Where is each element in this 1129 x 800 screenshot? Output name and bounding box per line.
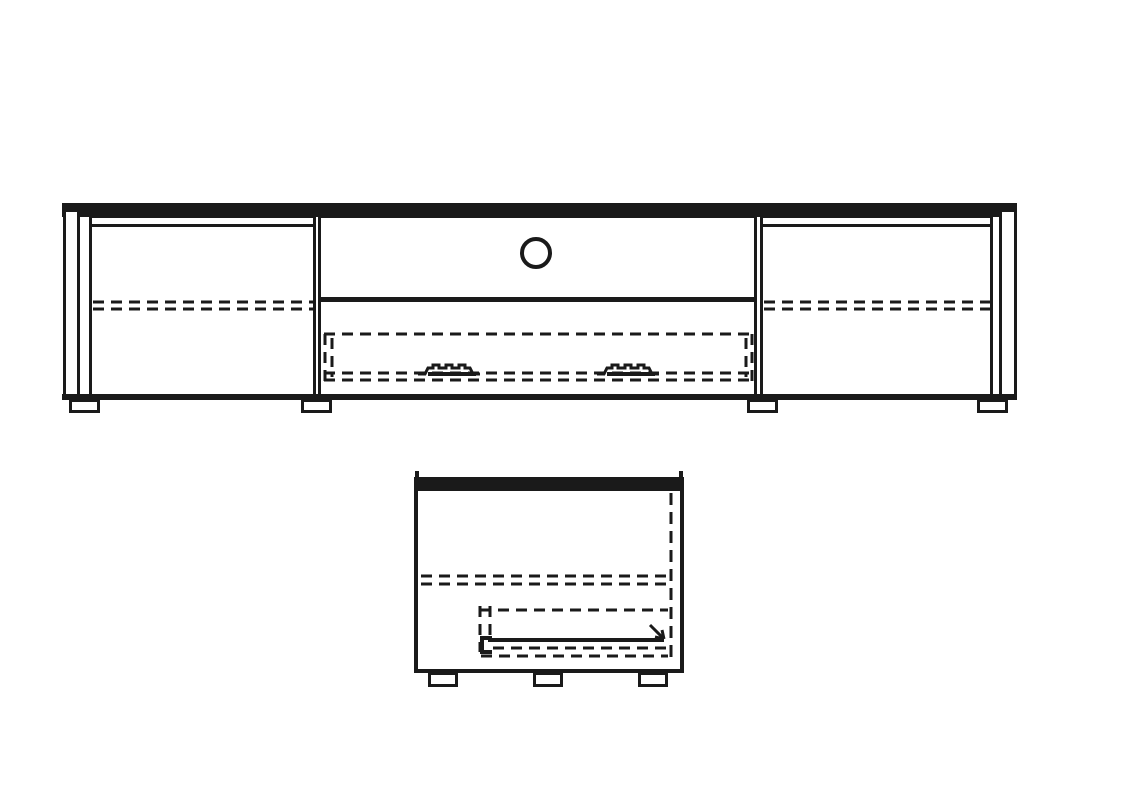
front-left-side-panel xyxy=(63,209,80,399)
side-top-panel xyxy=(414,477,684,491)
front-left-door-top-edge xyxy=(92,224,313,227)
front-right-side-panel xyxy=(999,209,1017,399)
front-foot-1 xyxy=(69,399,100,413)
front-bottom-rail xyxy=(62,394,1017,400)
front-middle-section xyxy=(318,215,757,400)
front-foot-3 xyxy=(747,399,778,413)
side-foot-1 xyxy=(428,672,458,687)
drawing-canvas xyxy=(0,0,1129,800)
front-middle-divider xyxy=(318,297,757,302)
front-right-door-top-edge xyxy=(763,224,990,227)
front-right-door xyxy=(760,215,993,400)
side-carcass xyxy=(414,477,684,673)
front-left-door xyxy=(89,215,316,400)
side-foot-2 xyxy=(533,672,563,687)
side-foot-3 xyxy=(638,672,668,687)
front-foot-2 xyxy=(301,399,332,413)
front-foot-4 xyxy=(977,399,1008,413)
detail-overlay xyxy=(0,0,1129,800)
